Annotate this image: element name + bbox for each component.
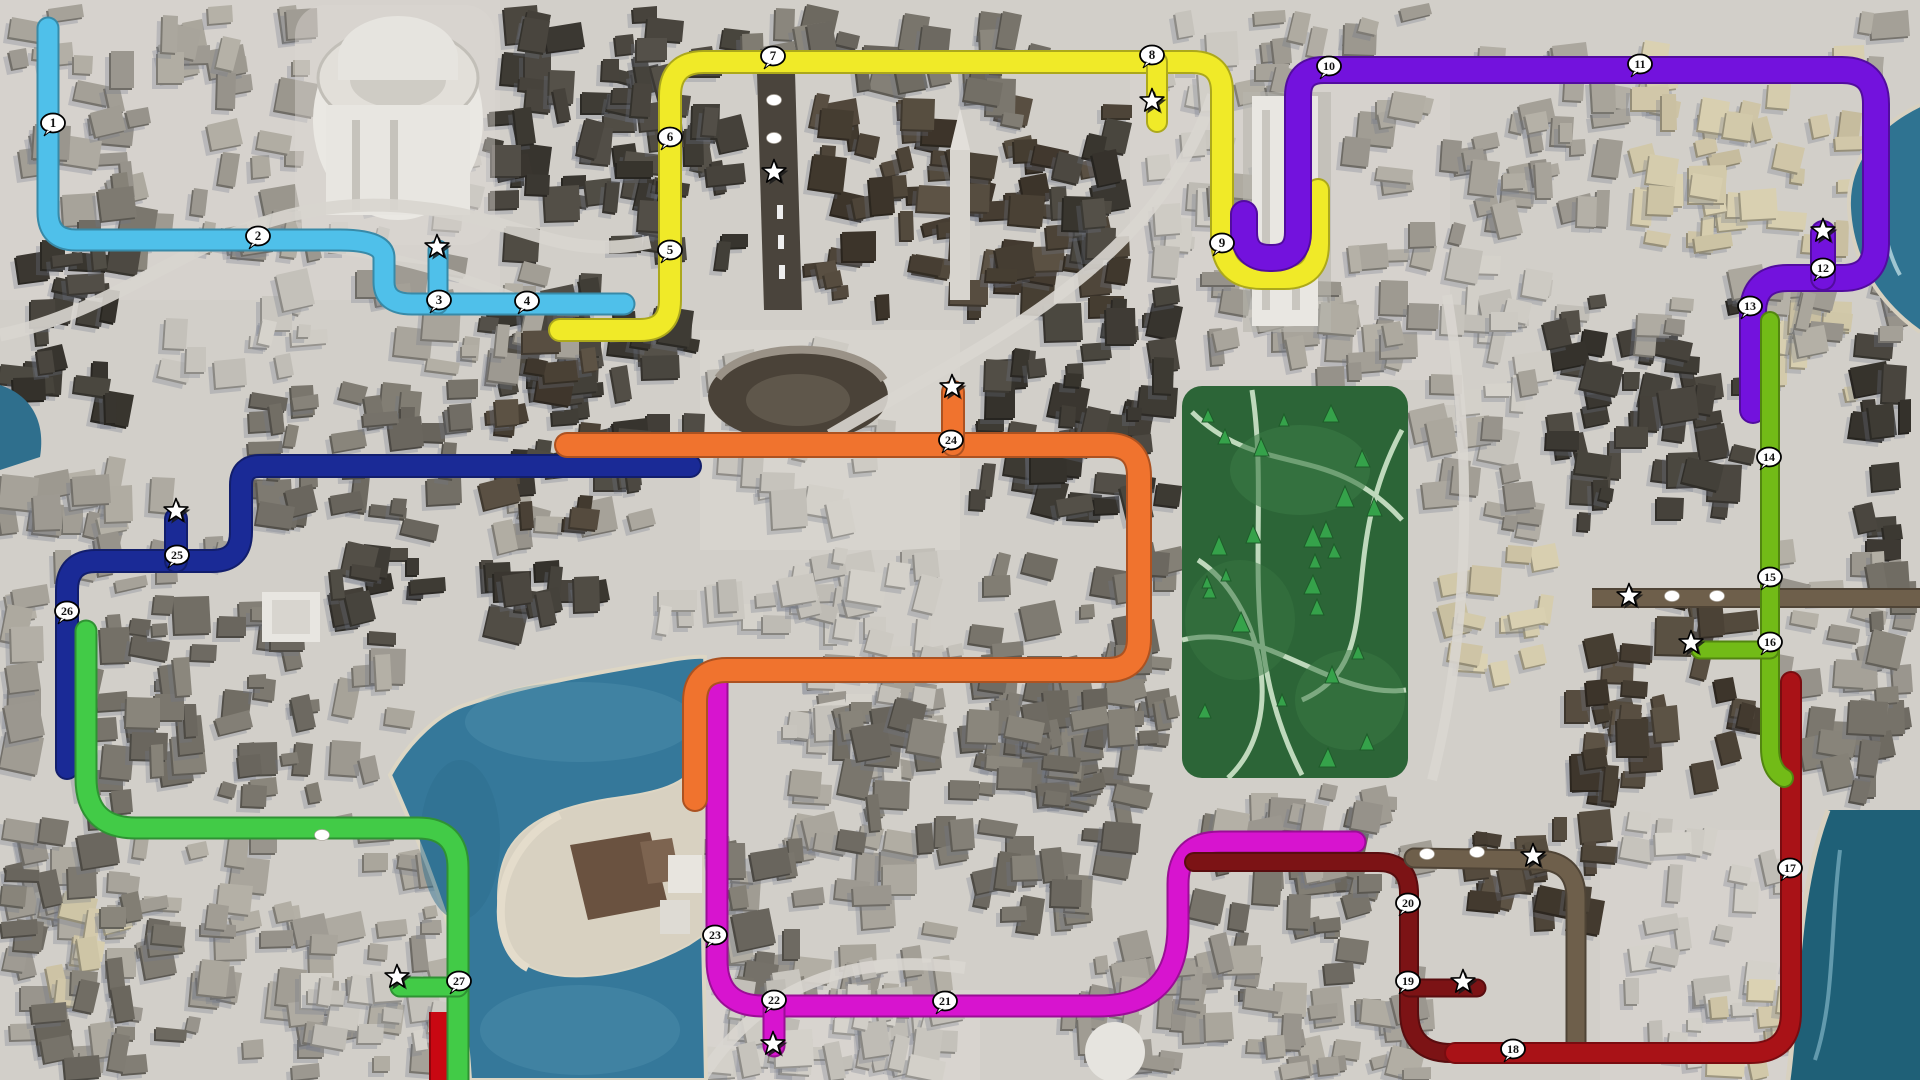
- svg-text:5: 5: [667, 242, 674, 257]
- svg-text:10: 10: [1323, 59, 1335, 73]
- svg-text:3: 3: [436, 292, 443, 307]
- svg-text:11: 11: [1634, 57, 1645, 71]
- svg-text:7: 7: [770, 48, 777, 63]
- svg-text:8: 8: [1149, 47, 1156, 62]
- svg-text:1: 1: [50, 115, 57, 130]
- svg-text:4: 4: [524, 293, 531, 308]
- svg-text:6: 6: [667, 129, 674, 144]
- svg-text:2: 2: [255, 228, 262, 243]
- svg-text:9: 9: [1219, 235, 1226, 250]
